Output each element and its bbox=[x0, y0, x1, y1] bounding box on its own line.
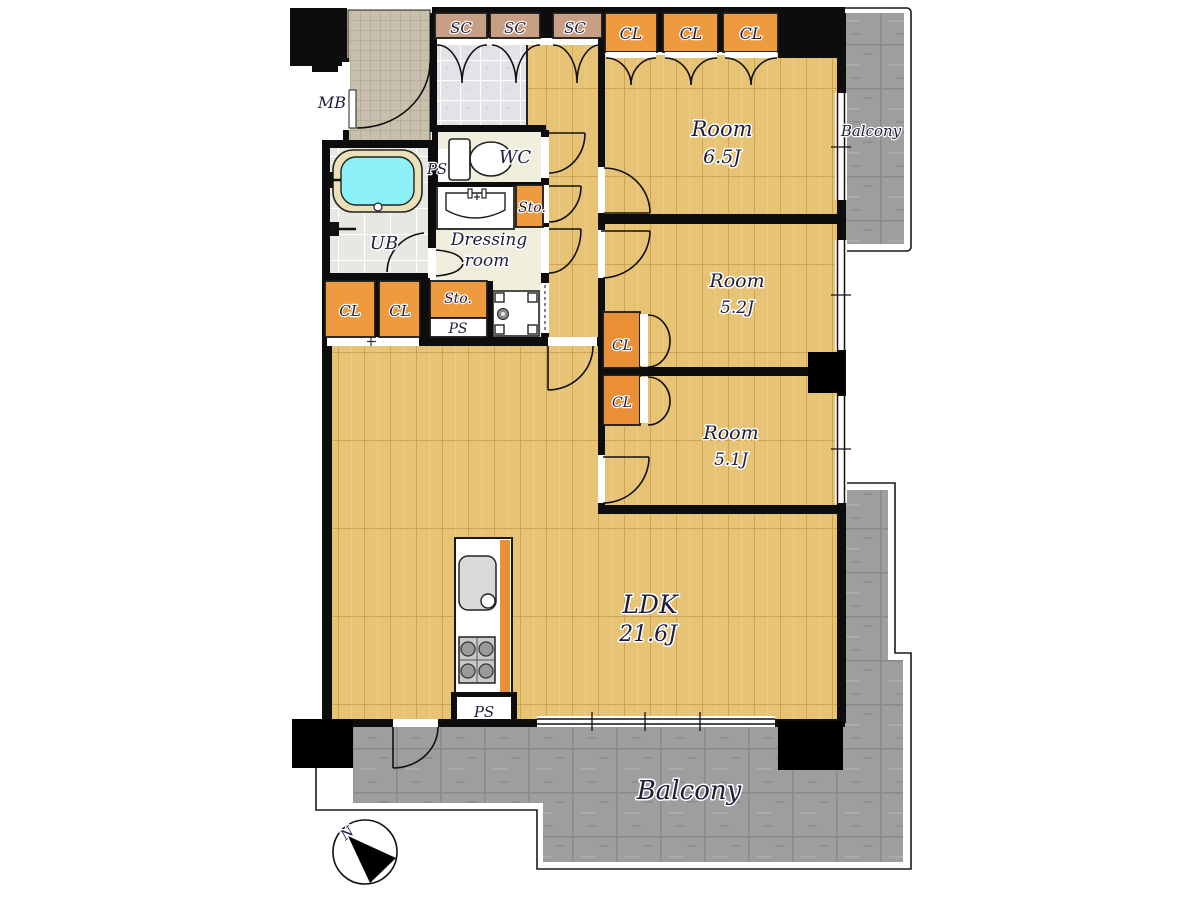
label-storage-dressing: Sto. bbox=[518, 200, 546, 216]
label-balcony-right: Balcony bbox=[840, 122, 902, 140]
label-dressing-line1: Dressing bbox=[450, 230, 528, 250]
label-closet-65j-3: CL bbox=[740, 24, 763, 43]
wall-top-right-block bbox=[778, 13, 845, 58]
label-storage-ldk: Sto. bbox=[444, 291, 472, 307]
label-closet-51j: CL bbox=[612, 395, 632, 411]
label-meter-box: MB bbox=[317, 93, 346, 112]
label-ps-bottom: PS bbox=[473, 703, 494, 721]
pillar-bottom-left bbox=[292, 719, 353, 768]
label-closet-65j-2: CL bbox=[680, 24, 703, 43]
label-ps-wc: PS bbox=[426, 160, 447, 178]
label-ps-left: PS bbox=[447, 321, 467, 337]
label-ldk-size: 21.6J bbox=[618, 622, 678, 647]
pillar-right-mid bbox=[808, 352, 845, 393]
floor-plan-page: N MB SC SC SC CL CL CL Room 6.5J Balcony… bbox=[0, 0, 1200, 900]
floor-plan: N MB SC SC SC CL CL CL Room 6.5J Balcony… bbox=[0, 0, 1200, 900]
kitchen-sink-icon bbox=[459, 556, 496, 610]
label-balcony-bottom: Balcony bbox=[636, 776, 742, 806]
label-closet-ldk-1: CL bbox=[339, 302, 360, 320]
kitchen-counter-edge bbox=[500, 540, 510, 695]
label-shoe-closet-3: SC bbox=[564, 19, 586, 37]
label-unit-bath: UB bbox=[370, 233, 398, 254]
pillar-top-left bbox=[290, 8, 347, 66]
washing-machine-pan-icon bbox=[493, 291, 539, 336]
washbasin-icon bbox=[437, 186, 514, 229]
entrance-porch-floor bbox=[348, 10, 430, 145]
label-dressing-line2: room bbox=[465, 251, 510, 271]
label-ldk-name: LDK bbox=[621, 590, 679, 619]
meter-box bbox=[349, 90, 356, 128]
label-room-52j-name: Room bbox=[708, 270, 764, 292]
label-room-51j-name: Room bbox=[702, 422, 758, 444]
shoe-closet-door-strip bbox=[437, 38, 602, 45]
label-closet-52j: CL bbox=[612, 338, 632, 354]
label-shoe-closet-2: SC bbox=[504, 19, 526, 37]
compass-icon: N bbox=[333, 820, 397, 884]
label-closet-65j-1: CL bbox=[620, 24, 643, 43]
stove-icon bbox=[459, 637, 495, 683]
bathtub-icon bbox=[324, 150, 422, 212]
label-closet-ldk-2: CL bbox=[389, 302, 410, 320]
label-room-52j-size: 5.2J bbox=[720, 298, 755, 318]
label-room-51j-size: 5.1J bbox=[714, 450, 749, 470]
pillar-bottom-right bbox=[778, 721, 843, 770]
label-shoe-closet-1: SC bbox=[450, 19, 472, 37]
kitchen-counter bbox=[455, 538, 512, 697]
genkan-floor bbox=[437, 45, 527, 125]
floors bbox=[330, 10, 837, 719]
label-room-65j-name: Room bbox=[690, 117, 752, 141]
hall-floor bbox=[527, 45, 598, 130]
label-wc: WC bbox=[499, 147, 532, 168]
label-room-65j-size: 6.5J bbox=[703, 146, 742, 168]
